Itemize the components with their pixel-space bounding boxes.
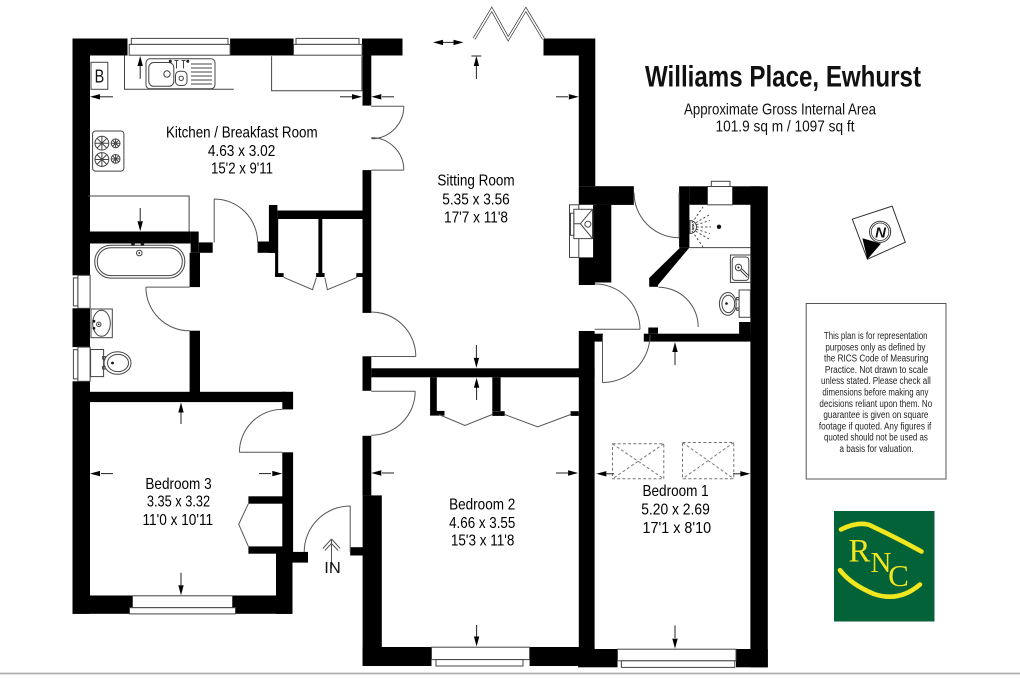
svg-text:Practice. Not drawn to scale: Practice. Not drawn to scale [825,365,928,376]
svg-text:the RICS Code of Measuring: the RICS Code of Measuring [824,354,929,365]
svg-text:17'7 x 11'8: 17'7 x 11'8 [444,210,508,227]
svg-text:4.66 x 3.55: 4.66 x 3.55 [449,515,515,532]
svg-text:Approximate Gross Internal Are: Approximate Gross Internal Area [684,102,876,119]
svg-text:guarantee is given on square: guarantee is given on square [823,410,928,421]
svg-text:15'2 x 9'11: 15'2 x 9'11 [211,160,273,177]
svg-text:Williams Place, Ewhurst: Williams Place, Ewhurst [645,61,921,94]
svg-text:17'1 x 8'10: 17'1 x 8'10 [643,520,712,537]
svg-text:purposes only as defined by: purposes only as defined by [825,342,925,353]
svg-text:decisions reliant upon them. N: decisions reliant upon them. No [819,399,932,410]
svg-text:dimensions before making any: dimensions before making any [822,388,928,399]
svg-text:11'0 x 10'11: 11'0 x 10'11 [142,512,213,529]
svg-text:3.35 x 3.32: 3.35 x 3.32 [147,494,210,511]
svg-text:101.9 sq m / 1097 sq ft: 101.9 sq m / 1097 sq ft [716,119,855,136]
svg-text:Bedroom 1: Bedroom 1 [643,483,709,500]
svg-text:5.20 x 2.69: 5.20 x 2.69 [641,502,710,519]
svg-text:This plan is for representatio: This plan is for representation [824,331,928,342]
svg-text:footage if quoted. Any figures: footage if quoted. Any figures if [819,421,932,432]
svg-text:IN: IN [324,560,341,577]
svg-text:a basis for valuation.: a basis for valuation. [840,444,914,455]
svg-text:quoted should not be used as: quoted should not be used as [824,433,928,444]
svg-text:Bedroom 3: Bedroom 3 [145,476,211,493]
svg-text:5.35 x 3.56: 5.35 x 3.56 [442,191,510,208]
svg-text:Sitting Room: Sitting Room [437,173,514,190]
svg-text:C: C [888,558,909,593]
svg-text:unless stated. Please check al: unless stated. Please check all [821,376,931,387]
svg-text:Bedroom 2: Bedroom 2 [449,496,515,513]
svg-text:N: N [875,225,887,242]
svg-text:B: B [95,67,105,87]
svg-text:15'3 x 11'8: 15'3 x 11'8 [451,533,515,550]
svg-text:Kitchen / Breakfast Room: Kitchen / Breakfast Room [166,124,318,141]
svg-text:R: R [848,534,870,570]
svg-text:4.63 x 3.02: 4.63 x 3.02 [208,143,276,160]
